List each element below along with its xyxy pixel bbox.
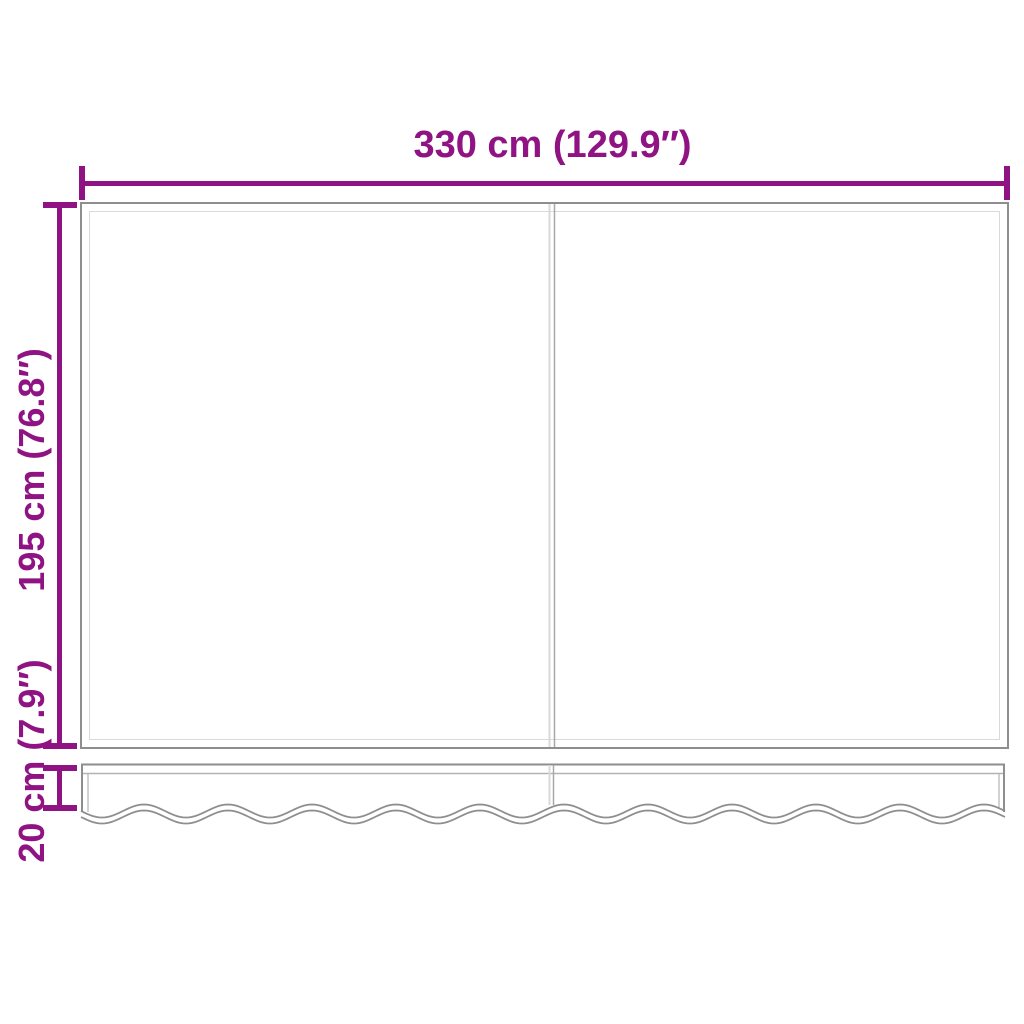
- fabric-panel-outline: [81, 203, 1008, 748]
- valance: [81, 764, 1005, 824]
- diagram-canvas: 330 cm (129.9″) 195 cm (76.8″) 20 cm (7.…: [0, 0, 1024, 1024]
- awning-drawing: [0, 0, 1024, 1024]
- awning-fabric-panel: [81, 203, 1008, 748]
